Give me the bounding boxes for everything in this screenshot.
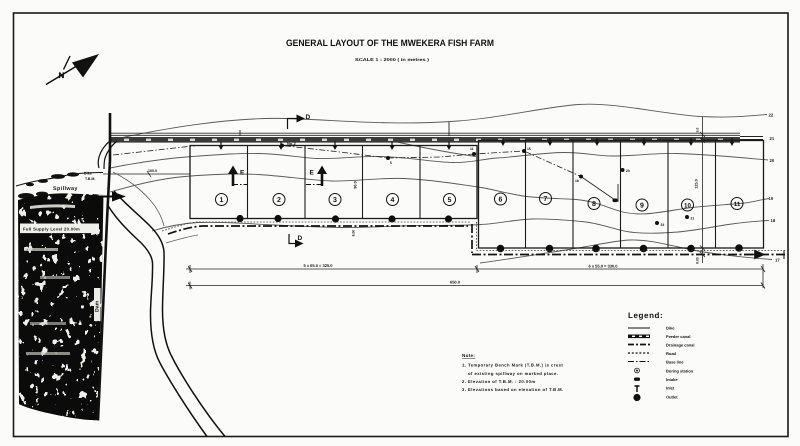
svg-text:22: 22: [769, 113, 774, 118]
svg-text:100.0: 100.0: [148, 169, 157, 173]
svg-text:9: 9: [640, 203, 644, 210]
svg-text:19: 19: [769, 196, 774, 201]
svg-text:Legend:: Legend:: [628, 311, 663, 320]
svg-text:10: 10: [684, 203, 691, 210]
svg-text:21: 21: [770, 136, 775, 141]
svg-text:2: 2: [277, 197, 281, 204]
svg-text:Drainage canal: Drainage canal: [666, 343, 694, 348]
svg-text:5 x 65.0 = 325.0: 5 x 65.0 = 325.0: [303, 263, 333, 268]
svg-text:650.0: 650.0: [450, 280, 461, 285]
svg-text:E: E: [310, 170, 315, 177]
svg-text:20: 20: [770, 158, 775, 163]
svg-text:Feeder canal: Feeder canal: [666, 334, 690, 339]
svg-text:5: 5: [390, 161, 392, 165]
svg-text:6: 6: [499, 197, 503, 204]
svg-text:N: N: [59, 71, 65, 80]
svg-text:3. Elevations based on elev: 3. Elevations based on elevation of T.B.…: [462, 387, 564, 392]
svg-text:SCALE 1 : 2000 ( in metres: SCALE 1 : 2000 ( in metres ): [355, 57, 430, 62]
svg-text:1: 1: [220, 197, 224, 204]
svg-text:Road: Road: [666, 351, 677, 356]
svg-text:Inlet: Inlet: [666, 386, 675, 391]
svg-text:17: 17: [775, 258, 780, 263]
svg-text:Outlet: Outlet: [666, 395, 678, 400]
svg-text:Base line: Base line: [666, 360, 684, 365]
svg-text:Dike: Dike: [84, 172, 92, 176]
svg-text:5.0: 5.0: [696, 128, 700, 133]
svg-text:E: E: [240, 170, 245, 177]
svg-text:8.00: 8.00: [352, 230, 356, 237]
svg-text:90.0: 90.0: [354, 181, 358, 188]
svg-text:T.B.M.: T.B.M.: [85, 177, 95, 181]
svg-text:20: 20: [626, 169, 630, 173]
svg-text:2. Elevation of T.B.M. : 2: 2. Elevation of T.B.M. : 20.00m: [462, 379, 536, 384]
svg-text:7: 7: [544, 196, 548, 203]
svg-text:4: 4: [391, 197, 395, 204]
svg-text:21: 21: [691, 217, 695, 221]
svg-text:3: 3: [333, 197, 337, 204]
svg-text:125.0: 125.0: [695, 179, 699, 189]
svg-text:18: 18: [771, 218, 776, 223]
svg-text:15: 15: [527, 147, 531, 151]
svg-text:of existing spillway on ma: of existing spillway on marked place.: [468, 371, 558, 376]
svg-text:Full Supply Level 20.00m: Full Supply Level 20.00m: [23, 227, 80, 232]
svg-text:No.2: No.2: [287, 141, 296, 146]
svg-text:11: 11: [734, 201, 741, 208]
svg-text:Boring station: Boring station: [666, 369, 694, 374]
svg-text:GENERAL LAYOUT OF THE MWEKERA: GENERAL LAYOUT OF THE MWEKERA FISH FARM: [286, 38, 494, 48]
svg-text:Dike: Dike: [666, 326, 675, 331]
svg-text:Spillway: Spillway: [53, 186, 78, 192]
svg-text:23: 23: [661, 223, 665, 227]
svg-text:18: 18: [575, 179, 579, 183]
svg-text:Note:: Note:: [462, 353, 475, 358]
svg-text:Intake: Intake: [666, 377, 678, 382]
svg-text:D: D: [298, 235, 303, 242]
svg-text:5: 5: [448, 197, 452, 204]
svg-text:8: 8: [592, 201, 596, 208]
svg-text:8.00: 8.00: [696, 257, 700, 264]
svg-text:1. Temporary Bench Mark (T.: 1. Temporary Bench Mark (T.B.M.) is cres…: [462, 363, 563, 368]
svg-text:D: D: [306, 114, 311, 121]
svg-text:11: 11: [470, 147, 474, 151]
svg-text:6 x 55.0 = 330.0: 6 x 55.0 = 330.0: [588, 264, 618, 269]
svg-text:Dam: Dam: [95, 300, 101, 312]
